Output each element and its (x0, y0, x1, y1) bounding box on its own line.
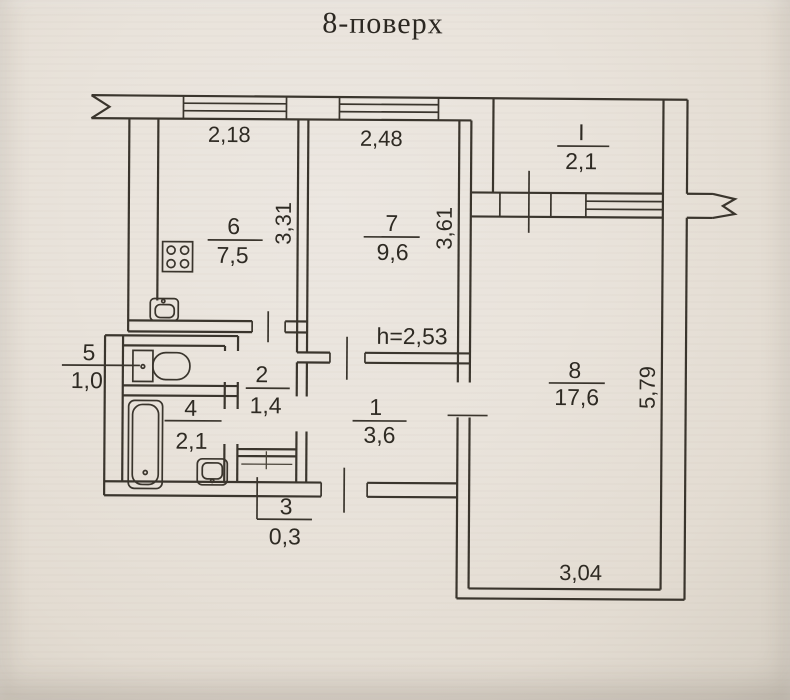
room4-area: 2,1 (175, 428, 207, 454)
stove-icon (162, 242, 192, 272)
room-label-6: 6 7,5 (207, 213, 262, 268)
room1-area: 3,6 (363, 422, 395, 448)
kitchen-bottom-wall (128, 320, 307, 332)
kitchen-window (183, 96, 286, 120)
room2-number: 2 (255, 361, 268, 387)
room3-area: 0,3 (269, 523, 301, 549)
dimension-ceiling-height: h=2,53 (377, 323, 448, 349)
room7-number: 7 (385, 210, 398, 236)
room7-window (339, 97, 438, 121)
room8-area: 17,6 (554, 384, 599, 410)
room-label-8: 8 17,6 (549, 357, 605, 410)
dimension-kitchen-depth: 3,31 (271, 202, 296, 245)
room-label-7: 7 9,6 (364, 210, 420, 265)
photographed-floor-plan-page: 8-поверх (0, 0, 790, 700)
room5-area: 1,0 (71, 367, 103, 393)
break-symbol-left (91, 95, 109, 118)
toilet-icon (133, 350, 190, 381)
room-label-1: 1 3,6 (352, 394, 406, 448)
dimension-room7-depth: 3,61 (432, 207, 457, 250)
room5-number: 5 (83, 339, 96, 365)
room3-number: 3 (280, 493, 293, 519)
closet-top-wall (237, 449, 296, 469)
top-exterior-wall (91, 95, 687, 122)
loggia-area: 2,1 (565, 148, 597, 174)
room6-area: 7,5 (217, 242, 249, 268)
dimension-room8-depth: 5,79 (635, 366, 660, 409)
page-title: 8-поверх (322, 7, 444, 41)
room-label-loggia: I 2,1 (557, 119, 609, 174)
room4-number: 4 (184, 395, 197, 421)
room7-bottom-wall (297, 352, 470, 363)
dimension-kitchen-width: 2,18 (208, 122, 251, 147)
room-label-3: 3 0,3 (257, 477, 312, 549)
loggia-number: I (578, 119, 585, 145)
room8-number: 8 (568, 357, 581, 383)
bathtub-icon (128, 400, 163, 488)
room8-bottom-wall (456, 588, 684, 599)
loggia-window (586, 201, 663, 209)
room2-area: 1,4 (250, 392, 282, 418)
kitchen-sink-icon (150, 299, 178, 321)
room7-area: 9,6 (377, 239, 409, 265)
room6-number: 6 (227, 213, 240, 239)
room1-number: 1 (369, 394, 382, 420)
dimension-room7-width: 2,48 (360, 126, 403, 151)
room-label-4: 4 2,1 (164, 395, 221, 454)
dimension-room8-width: 3,04 (559, 560, 602, 585)
right-exterior-wall (660, 100, 735, 600)
room-label-2: 2 1,4 (246, 361, 290, 418)
room8-left-wall (456, 120, 471, 598)
break-symbol-right (713, 194, 735, 218)
floor-plan-svg: 8-поверх (0, 0, 790, 700)
room6-room7-divider-wall (296, 119, 308, 482)
